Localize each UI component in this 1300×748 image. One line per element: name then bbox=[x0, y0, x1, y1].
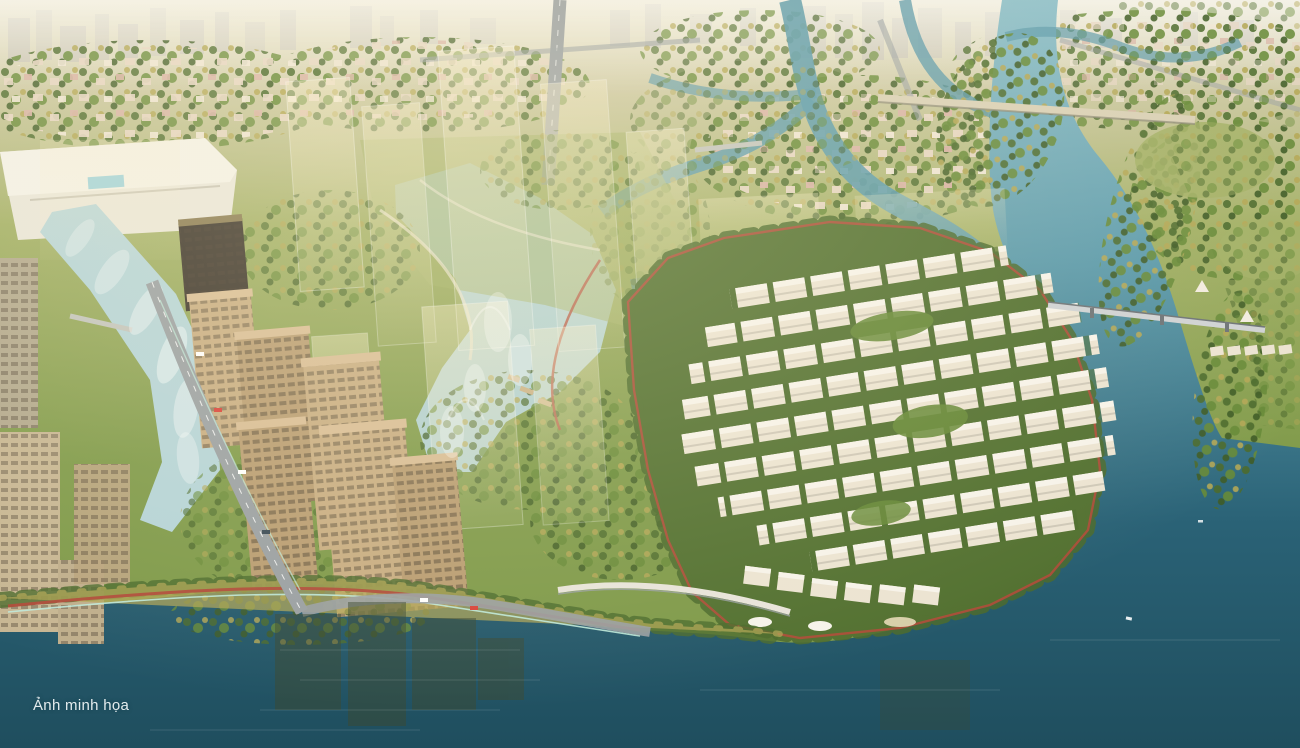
caption: Ảnh minh họa bbox=[33, 697, 129, 714]
masterplan-aerial-render: Ảnh minh họa bbox=[0, 0, 1300, 748]
sunlight-glow bbox=[0, 0, 1300, 748]
